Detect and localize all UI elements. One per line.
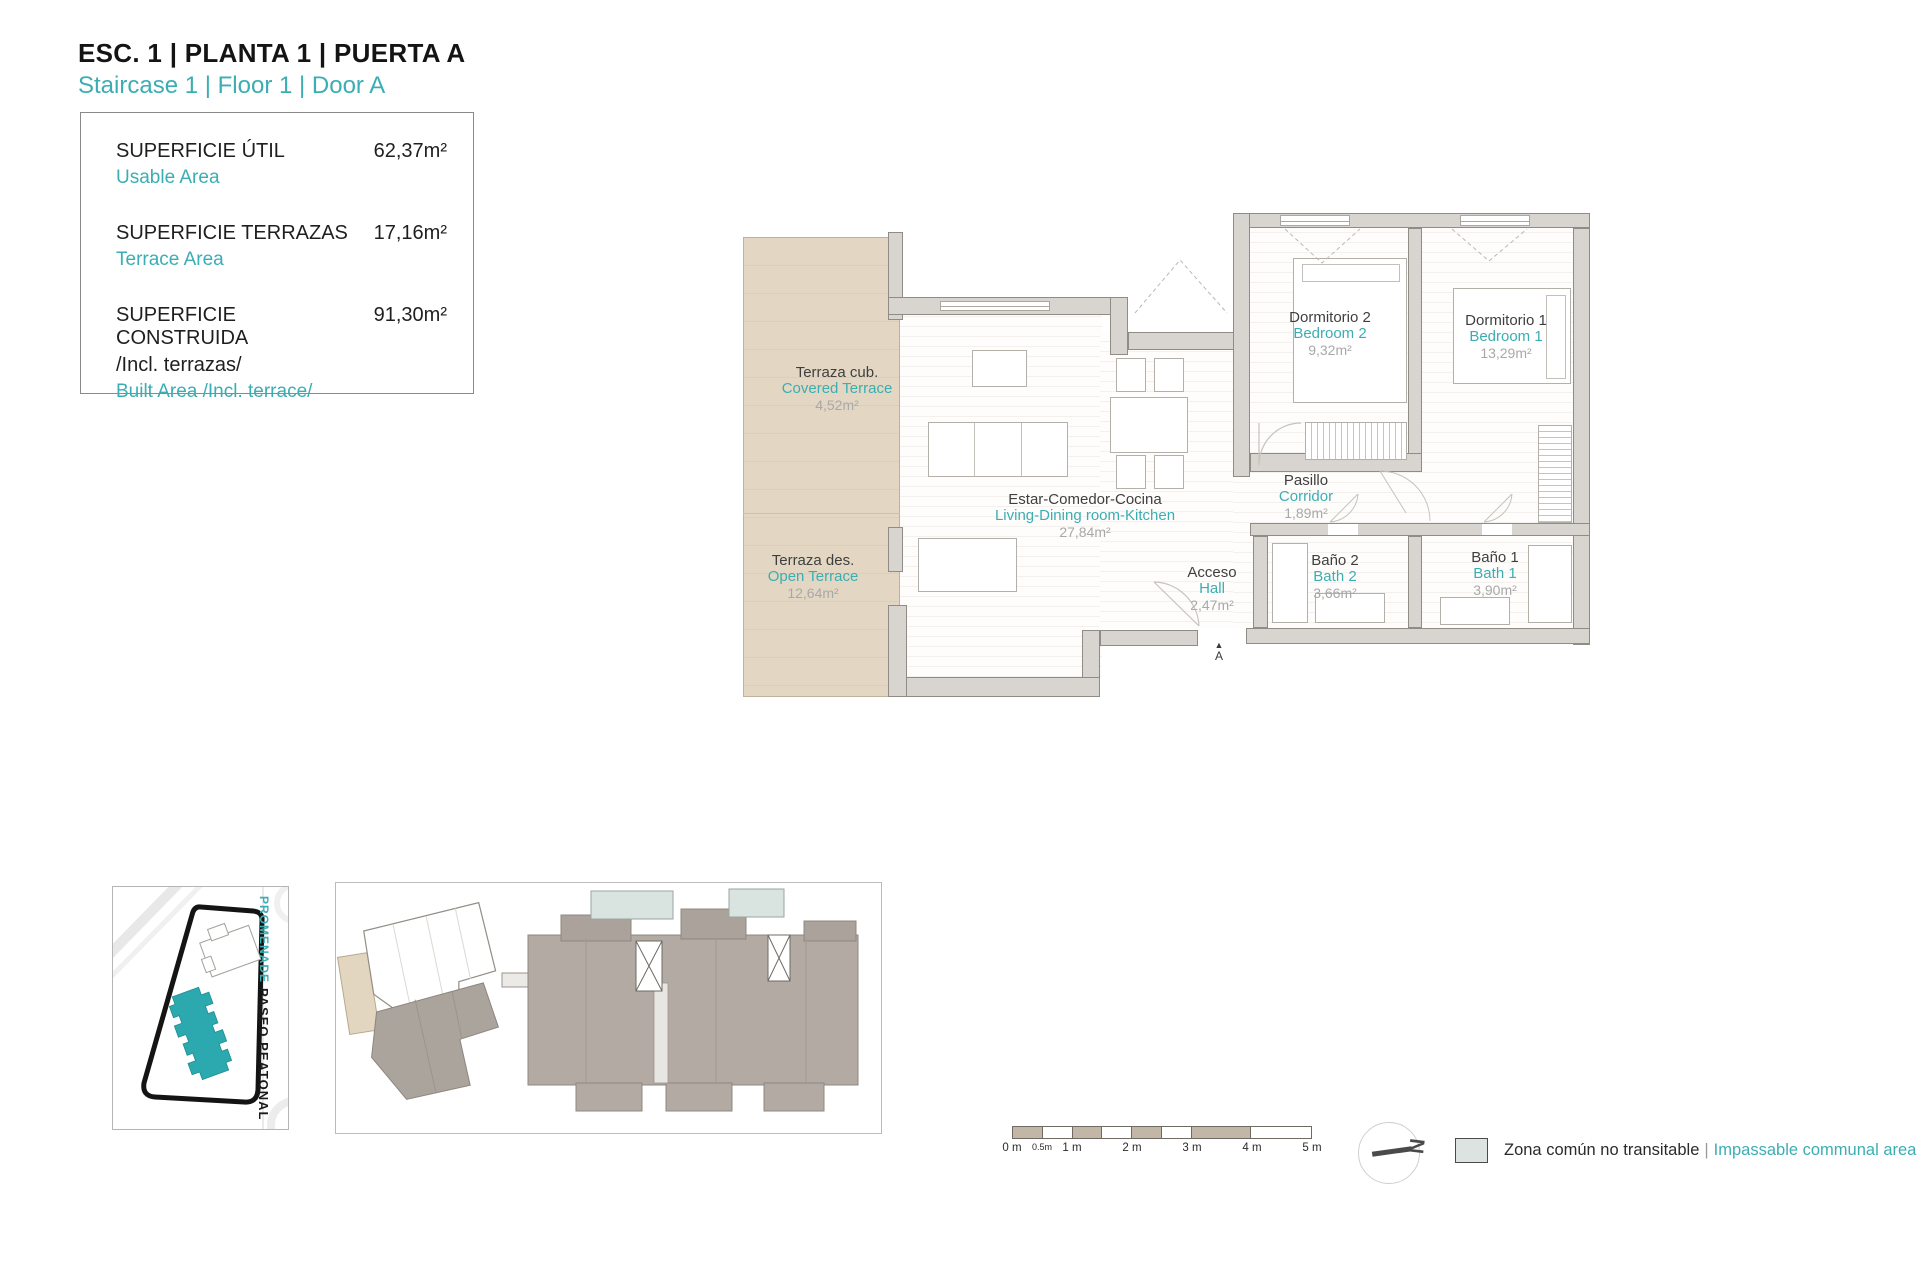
room-label-open-terrace: Terraza des.Open Terrace12,64m² — [768, 553, 859, 601]
room-label-covered-terrace: Terraza cub.Covered Terrace4,52m² — [782, 365, 893, 413]
room-label-corridor: PasilloCorridor1,89m² — [1279, 473, 1333, 521]
wall — [1573, 228, 1590, 645]
summary-label-en: Usable Area — [116, 167, 447, 189]
floor-plan-page: ESC. 1 | PLANTA 1 | PUERTA A Staircase 1… — [0, 0, 1920, 1280]
summary-row-terrace: SUPERFICIE TERRAZAS 17,16m² Terrace Area — [116, 222, 447, 271]
entrance-marker: ▲ A — [1211, 641, 1227, 663]
coffee-table — [972, 350, 1027, 387]
door-gap — [1328, 524, 1358, 535]
summary-label: SUPERFICIE TERRAZAS — [116, 222, 348, 245]
sofa — [928, 422, 1068, 477]
chair — [1154, 455, 1184, 489]
dining-table — [1110, 397, 1188, 453]
legend-separator: | — [1699, 1141, 1713, 1159]
surface-summary-box: SUPERFICIE ÚTIL 62,37m² Usable Area SUPE… — [80, 112, 474, 394]
wall — [1128, 332, 1245, 350]
overview-bridge — [502, 973, 530, 987]
wall — [1233, 213, 1250, 477]
scale-bar-segments — [1012, 1126, 1312, 1139]
chair — [1154, 358, 1184, 392]
legend-swatch-icon — [1455, 1138, 1488, 1163]
room-label-bedroom-2: Dormitorio 2Bedroom 29,32m² — [1289, 310, 1371, 358]
entrance-letter: A — [1211, 650, 1227, 663]
wall — [1250, 523, 1590, 536]
sink-1 — [1440, 597, 1510, 625]
street-label-promenade: PROMENADE — [257, 896, 271, 983]
room-label-bath-2: Baño 2Bath 23,66m² — [1311, 553, 1359, 601]
window — [1280, 215, 1350, 226]
wall — [1408, 536, 1422, 628]
wall — [1100, 630, 1198, 646]
kitchen-island — [918, 538, 1017, 592]
room-label-living: Estar-Comedor-CocinaLiving-Dining room-K… — [995, 492, 1175, 540]
window — [1460, 215, 1530, 226]
overview-right-wing — [528, 889, 858, 1111]
street-label-paseo-peatonal: PASEO PEATONAL — [256, 988, 271, 1120]
wall — [1253, 536, 1268, 628]
door-gap — [1482, 524, 1512, 535]
wall — [888, 527, 903, 572]
legend-label-es: Zona común no transitable — [1504, 1141, 1699, 1159]
overview-drawing — [336, 883, 882, 1134]
summary-label: SUPERFICIE CONSTRUIDA — [116, 304, 374, 350]
wall — [888, 677, 1100, 697]
window — [940, 301, 1050, 311]
wall — [1246, 628, 1590, 644]
north-compass: N — [1358, 1122, 1428, 1188]
page-subtitle: Staircase 1 | Floor 1 | Door A — [78, 72, 465, 100]
scale-label: 4 m — [1242, 1142, 1261, 1154]
summary-value: 91,30m² — [374, 304, 447, 327]
summary-label-note: /Incl. terrazas/ — [116, 354, 447, 377]
terrace-area — [743, 237, 900, 697]
compass-north-label: N — [1403, 1137, 1429, 1155]
bathtub-1 — [1528, 545, 1572, 623]
scale-label: 5 m — [1302, 1142, 1321, 1154]
bathtub-2 — [1272, 543, 1308, 623]
room-label-bedroom-1: Dormitorio 1Bedroom 113,29m² — [1465, 313, 1547, 361]
legend: Zona común no transitable|Impassable com… — [1455, 1138, 1916, 1163]
wall — [1110, 297, 1128, 355]
summary-row-usable: SUPERFICIE ÚTIL 62,37m² Usable Area — [116, 140, 447, 189]
wall — [1408, 228, 1422, 462]
wardrobe — [1305, 422, 1407, 460]
wall — [888, 605, 907, 697]
summary-label: SUPERFICIE ÚTIL — [116, 140, 285, 163]
scale-label: 1 m — [1062, 1142, 1081, 1154]
chair — [1116, 455, 1146, 489]
legend-label-en: Impassable communal area — [1714, 1141, 1917, 1159]
summary-value: 17,16m² — [374, 222, 447, 245]
scale-label: 0 m — [1002, 1142, 1021, 1154]
summary-row-built: SUPERFICIE CONSTRUIDA 91,30m² /Incl. ter… — [116, 304, 447, 403]
scale-label: 3 m — [1182, 1142, 1201, 1154]
page-title: ESC. 1 | PLANTA 1 | PUERTA A — [78, 38, 465, 69]
summary-value: 62,37m² — [374, 140, 447, 163]
terrace-roof-edge — [743, 513, 900, 514]
room-label-hall: AccesoHall2,47m² — [1187, 565, 1236, 613]
apartment-floor-plan: Terraza cub.Covered Terrace4,52m² Terraz… — [740, 205, 1620, 725]
overview-left-wing — [336, 902, 513, 1107]
wardrobe — [1538, 425, 1572, 523]
scale-label: 0.5m — [1032, 1142, 1052, 1152]
building-overview-plan — [335, 882, 882, 1134]
summary-label-en: Built Area /Incl. terrace/ — [116, 381, 447, 403]
room-label-bath-1: Baño 1Bath 13,90m² — [1471, 550, 1519, 598]
summary-label-en: Terrace Area — [116, 249, 447, 271]
chair — [1116, 358, 1146, 392]
scale-bar: 0 m 0.5m 1 m 2 m 3 m 4 m 5 m — [1012, 1126, 1312, 1160]
scale-label: 2 m — [1122, 1142, 1141, 1154]
page-header: ESC. 1 | PLANTA 1 | PUERTA A Staircase 1… — [78, 38, 465, 100]
